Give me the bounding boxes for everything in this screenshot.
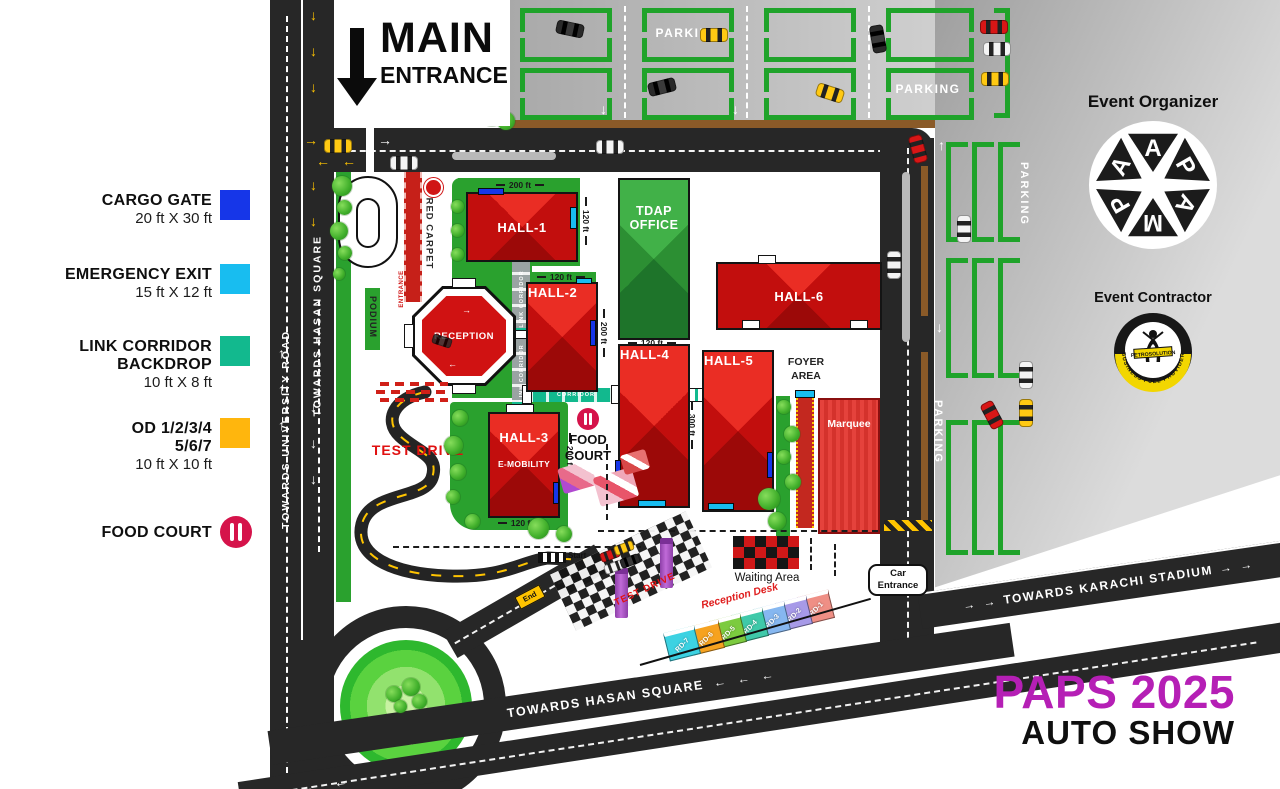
parking-slot xyxy=(998,258,1020,378)
left-arrow-marking: ← xyxy=(298,779,314,789)
legend-od-swatch xyxy=(220,418,250,448)
event-title-line1: PAPS 2025 xyxy=(940,668,1235,716)
event-organizer-heading: Event Organizer xyxy=(1068,92,1238,112)
parking-label-right: PARKING xyxy=(932,392,944,472)
pedestrian-crossing xyxy=(366,128,374,172)
tree xyxy=(465,514,480,529)
car xyxy=(324,139,352,153)
right-arrow-marking: → xyxy=(304,133,318,147)
event-title: PAPS 2025 AUTO SHOW xyxy=(940,668,1235,751)
organizer-letter: A xyxy=(1144,135,1161,162)
tree xyxy=(446,490,460,504)
hall6-door xyxy=(850,320,868,329)
emergency-exit xyxy=(795,390,815,398)
tree xyxy=(444,436,463,455)
dashed-boundary xyxy=(393,546,641,548)
tree xyxy=(768,512,786,530)
tree xyxy=(777,450,791,464)
event-title-line2: AUTO SHOW xyxy=(940,716,1235,751)
main-entrance-title: MAIN xyxy=(380,14,510,63)
down-arrow-marking: ↓ xyxy=(310,80,317,94)
right-arrow-marking: → xyxy=(462,306,471,315)
car xyxy=(700,28,728,42)
cargo-gate xyxy=(553,482,559,504)
organizer-letter: M xyxy=(1143,209,1163,236)
hasan-road-label: TOWARDS HASAN SQUARE xyxy=(312,242,324,417)
food-court-icon xyxy=(577,408,599,430)
cargo-gate xyxy=(767,452,773,478)
legend-food-court-label: FOOD COURT xyxy=(60,524,212,542)
parking-slot xyxy=(520,98,612,120)
down-arrow-marking: ↓ xyxy=(310,178,317,192)
dashed-boundary xyxy=(606,444,608,520)
tree xyxy=(332,176,352,196)
red-crosswalk xyxy=(376,390,450,394)
hall6-door xyxy=(758,255,776,264)
tree xyxy=(338,246,352,260)
up-arrow-marking: ↑ xyxy=(938,138,945,152)
legend-cargo-gate-size: 20 ft X 30 ft xyxy=(60,210,212,227)
legend-od-label: OD 1/2/3/4 xyxy=(60,420,212,438)
cargo-gate xyxy=(590,320,596,346)
car xyxy=(981,72,1009,86)
down-arrow-marking: ↓ xyxy=(936,320,943,334)
lane-divider xyxy=(746,6,748,118)
tree xyxy=(330,222,348,240)
parking-slot xyxy=(764,38,856,62)
right-arrow-marking: → xyxy=(1219,560,1234,576)
tree xyxy=(777,400,791,414)
dashed-boundary xyxy=(810,538,812,570)
hall-3: HALL-3 E-MOBILITY xyxy=(488,412,560,518)
car xyxy=(1019,361,1033,389)
palm-tree xyxy=(528,518,549,539)
red-crosswalk xyxy=(380,382,448,386)
parking-label-right: PARKING xyxy=(1018,154,1030,234)
marquee-walkway xyxy=(796,398,814,528)
curb-segment xyxy=(921,352,928,520)
main-entrance-subtitle: ENTRANCE xyxy=(380,62,510,89)
hall-2: HALL-2 xyxy=(526,282,598,392)
bush xyxy=(451,248,464,261)
parking-slot xyxy=(886,38,974,62)
hall1-depth-label: 120 ft xyxy=(581,191,591,251)
lane-divider xyxy=(868,6,870,118)
parking-slot xyxy=(998,420,1020,555)
legend-emergency-exit-swatch xyxy=(220,264,250,294)
car-entrance-label: Car Entrance xyxy=(868,564,928,596)
parking-slot xyxy=(764,8,856,32)
bush xyxy=(451,200,464,213)
parking-slot xyxy=(764,68,856,92)
tree xyxy=(412,694,427,709)
right-arrow-marking: → xyxy=(982,594,997,610)
road-median xyxy=(452,152,556,160)
palm-tree xyxy=(556,526,572,542)
tree xyxy=(394,700,407,713)
down-arrow-marking: ↓ xyxy=(310,44,317,58)
parking-slot xyxy=(998,142,1020,242)
tree xyxy=(784,426,800,442)
podium-label: PODIUM xyxy=(368,282,378,352)
down-arrow-marking: ↓ xyxy=(310,472,317,486)
reception-door xyxy=(452,384,476,394)
road-divider xyxy=(301,0,303,640)
legend-od-size: 10 ft X 10 ft xyxy=(60,456,212,473)
up-arrow-marking: ↑ xyxy=(278,418,285,432)
down-arrow-marking: ↓ xyxy=(310,400,317,414)
down-arrow-marking: ↓ xyxy=(600,102,607,116)
left-arrow-marking: ← xyxy=(736,671,752,687)
down-arrow-marking: ↓ xyxy=(310,436,317,450)
marquee-label: Marquee xyxy=(820,418,878,430)
paapam-logo: A P A M P A xyxy=(1088,120,1218,250)
parking-slot xyxy=(886,8,974,32)
foyer-area: FOYER AREA xyxy=(782,356,830,383)
hall2-depth-label: 200 ft xyxy=(599,303,609,363)
tree xyxy=(452,410,468,426)
road-median xyxy=(902,172,910,342)
bush xyxy=(451,224,464,237)
parking-slot xyxy=(972,142,994,242)
red-carpet-path xyxy=(404,172,422,302)
emergency-exit xyxy=(708,503,734,510)
petrosolution-logo: PETROSOLUTION BUSINESS FUEL PROVIDER xyxy=(1113,312,1193,392)
karachi-road-label: TOWARDS KARACHI STADIUM xyxy=(1003,563,1214,607)
up-arrow-marking: ↑ xyxy=(278,382,285,396)
venue-map: TOWARDS UNIVERSITY ROAD TOWARDS HASAN SQ… xyxy=(0,0,1280,789)
tree xyxy=(333,268,345,280)
parking-slot xyxy=(972,258,994,378)
legend-link-corridor-label: LINK CORRIDOR xyxy=(60,338,212,356)
left-arrow-marking: ← xyxy=(448,360,457,369)
parking-slot xyxy=(764,98,856,120)
down-arrow-marking: ↓ xyxy=(310,8,317,22)
parking-slot xyxy=(886,98,974,120)
tree xyxy=(785,474,801,490)
car xyxy=(983,42,1011,56)
parking-label-top: PARKING xyxy=(878,82,978,96)
parking-slot xyxy=(946,258,968,378)
right-arrow-marking: → xyxy=(378,133,392,147)
dashed-boundary xyxy=(834,544,836,576)
left-arrow-marking: ← xyxy=(760,667,776,683)
cargo-gate xyxy=(478,188,504,195)
reception-door xyxy=(452,278,476,288)
right-arrow-marking: → xyxy=(962,597,977,613)
hall45-depth-label: 300 ft xyxy=(687,395,697,455)
emergency-exit xyxy=(638,500,666,507)
marquee-tent: Marquee xyxy=(818,398,880,534)
left-arrow-marking: ← xyxy=(713,674,729,690)
legend-cargo-gate-label: CARGO GATE xyxy=(60,192,212,210)
parking-slot xyxy=(642,98,734,120)
car xyxy=(957,215,971,243)
event-contractor-heading: Event Contractor xyxy=(1078,290,1228,306)
main-entrance-block: MAIN ENTRANCE xyxy=(334,0,510,126)
hall-5: HALL-5 xyxy=(702,350,774,512)
parking-slot xyxy=(972,420,994,555)
parking-slot xyxy=(946,420,968,555)
tdap-office: TDAP OFFICE xyxy=(618,178,690,340)
stop-icon xyxy=(424,178,443,197)
emergency-exit xyxy=(570,207,577,229)
parking-slot xyxy=(520,68,612,92)
legend-link-corridor-swatch xyxy=(220,336,250,366)
curb-strip xyxy=(510,120,935,128)
car xyxy=(1019,399,1033,427)
waiting-area-grid xyxy=(733,536,799,569)
hall-1: HALL-1 xyxy=(466,192,578,262)
left-arrow-marking: ← xyxy=(333,774,349,789)
hazard-hatch xyxy=(884,520,932,531)
parking-slot xyxy=(520,38,612,62)
hall6-door xyxy=(742,320,760,329)
legend-link-corridor-size: 10 ft X 8 ft xyxy=(60,374,212,391)
entrance-path-label: ENTRANCE xyxy=(399,259,405,319)
legend-emergency-exit-size: 15 ft X 12 ft xyxy=(60,284,212,301)
podium-island xyxy=(356,198,380,248)
hasan-bottom-label: TOWARDS HASAN SQUARE xyxy=(506,678,704,721)
left-arrow-marking: ← xyxy=(316,154,330,168)
lane-divider xyxy=(624,6,626,118)
start-marker xyxy=(538,552,566,563)
link-corridor-label: LINK CORRIDOR xyxy=(519,269,525,329)
car xyxy=(887,251,901,279)
tree xyxy=(450,464,466,480)
red-carpet-label: RED CARPET xyxy=(424,189,435,279)
curb-segment xyxy=(921,166,928,316)
emergency-exit xyxy=(576,278,592,284)
car xyxy=(390,156,418,170)
up-arrow-marking: ↑ xyxy=(278,346,285,360)
reception-door xyxy=(404,324,414,348)
tree xyxy=(337,200,352,215)
down-arrow-marking: ↓ xyxy=(732,102,739,116)
legend-cargo-gate-swatch xyxy=(220,190,250,220)
car xyxy=(980,20,1008,34)
left-arrow-marking: ← xyxy=(342,154,356,168)
right-arrow-marking: → xyxy=(1239,557,1254,573)
food-court-icon xyxy=(220,516,252,548)
red-crosswalk xyxy=(380,398,448,402)
tree xyxy=(758,488,780,510)
legend-emergency-exit-label: EMERGENCY EXIT xyxy=(60,266,212,284)
down-arrow-marking: ↓ xyxy=(310,214,317,228)
corridor-label: CORRIDOR xyxy=(546,392,606,398)
car xyxy=(596,140,624,154)
